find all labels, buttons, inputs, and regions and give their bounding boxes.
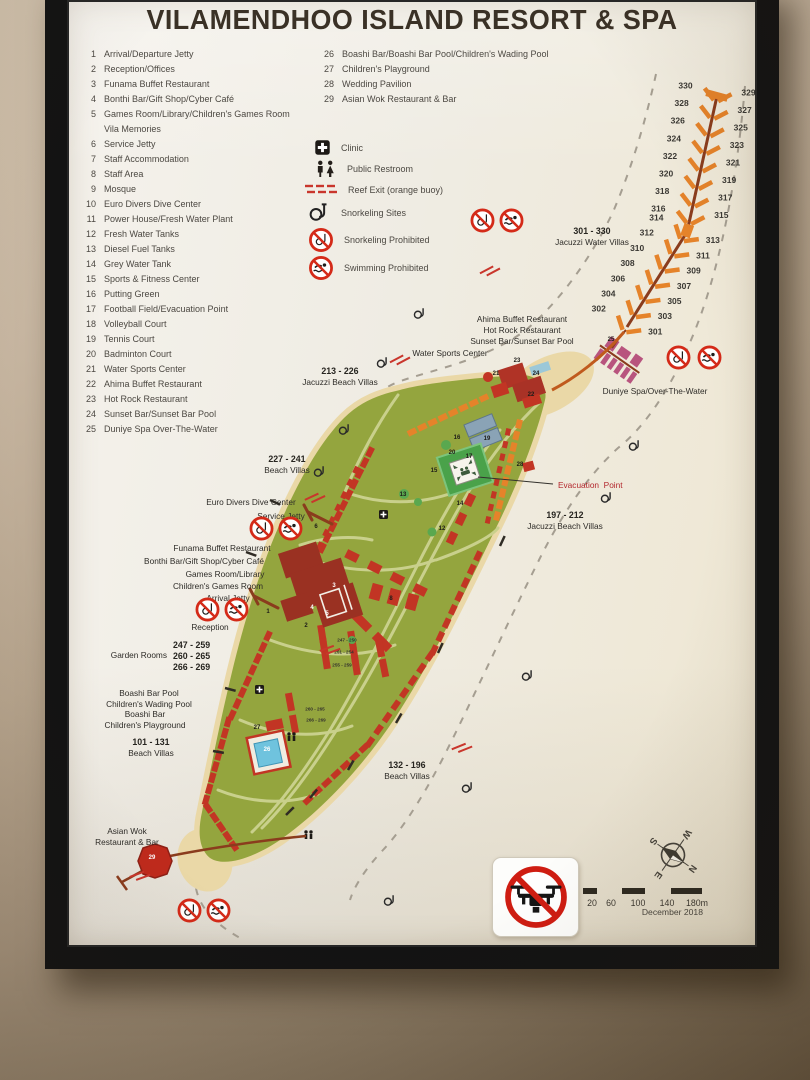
photo-of-resort-map-poster: 3023013043033063053083073103093123113143… <box>0 0 810 1080</box>
picture-frame <box>45 0 779 969</box>
